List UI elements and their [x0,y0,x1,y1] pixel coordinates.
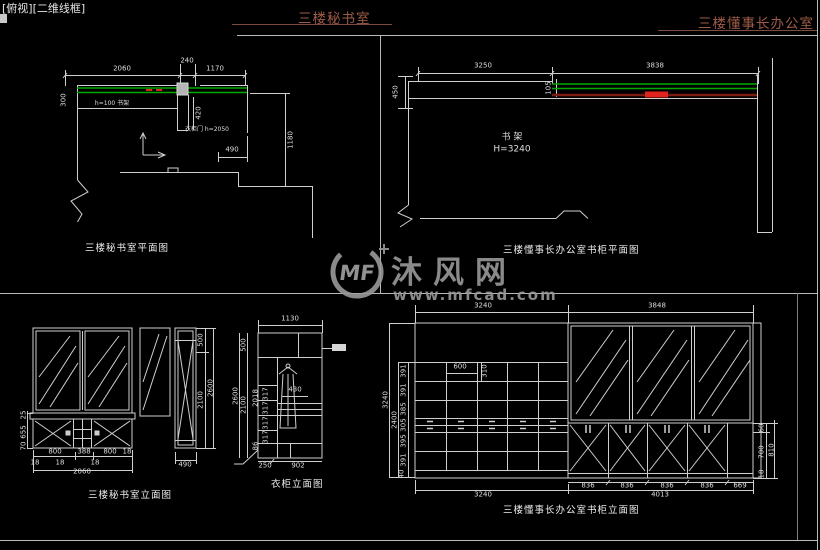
secretary-elevation-linework [27,328,216,473]
chairman-plan-red-block [645,92,668,98]
wardrobe-elevation-linework [234,320,346,464]
title-underlines [232,25,817,31]
cad-canvas[interactable]: [俯视][二维线框] 三楼秘书室 三楼懂事长办公室 三楼秘书室平面图 三楼懂事长… [0,0,820,550]
bookcase-elevation-linework [389,305,778,494]
chairman-plan-bookcase-green [552,84,757,89]
cad-linework [0,0,820,550]
plan-column-block [177,83,188,95]
watermark-logo [324,239,391,306]
